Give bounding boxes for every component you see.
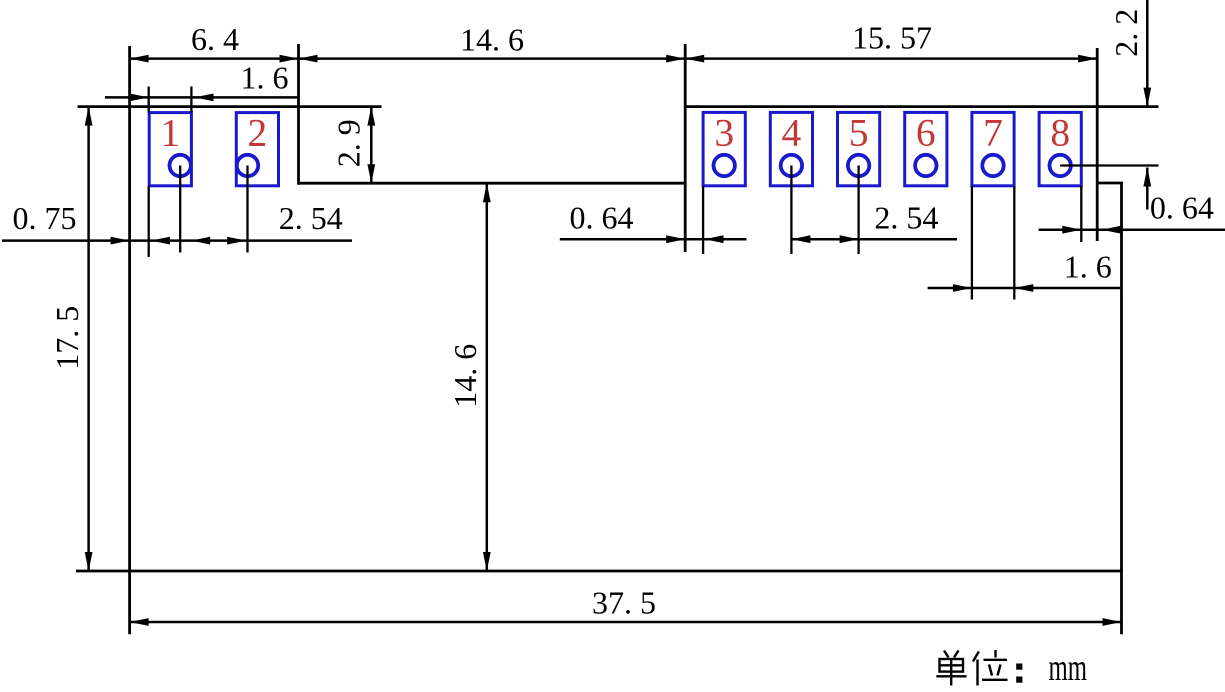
svg-text:2. 54: 2. 54 [874,200,938,236]
svg-text:2. 54: 2. 54 [279,200,343,236]
svg-text:0. 64: 0. 64 [1150,190,1214,226]
svg-text:6. 4: 6. 4 [191,21,239,57]
svg-text:17. 5: 17. 5 [49,306,85,370]
svg-text:15. 57: 15. 57 [852,20,932,56]
svg-text:3: 3 [714,111,734,155]
svg-text:1. 6: 1. 6 [241,60,289,96]
svg-text:2. 9: 2. 9 [331,119,367,167]
svg-text:2. 2: 2. 2 [1108,9,1144,57]
svg-text:0. 75: 0. 75 [13,200,77,236]
svg-text:14. 6: 14. 6 [460,22,524,58]
svg-text:4: 4 [782,111,802,155]
svg-text:37. 5: 37. 5 [592,585,656,621]
svg-text:8: 8 [1050,111,1070,155]
svg-text:7: 7 [983,111,1003,155]
svg-text:6: 6 [916,111,936,155]
svg-text:1. 6: 1. 6 [1064,249,1112,285]
svg-text:5: 5 [849,111,869,155]
svg-text:2: 2 [248,111,268,155]
svg-text:14. 6: 14. 6 [447,344,483,408]
svg-text:mm: mm [1049,647,1088,689]
svg-text:1: 1 [160,111,180,155]
svg-text:0. 64: 0. 64 [570,200,634,236]
